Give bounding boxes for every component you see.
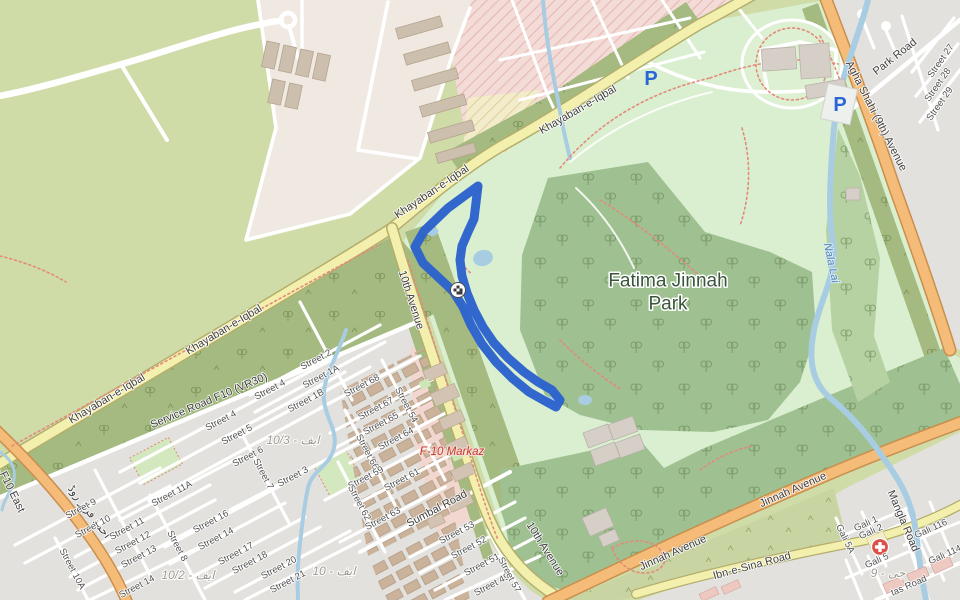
map-canvas[interactable]: PP Fatima JinnahPark Khayaban-e-IqbalKha…: [0, 0, 960, 600]
retail-label: F-10 Markaz: [420, 446, 485, 458]
area-label: 10 - ایف: [312, 564, 357, 578]
place-label: Park: [648, 294, 688, 315]
area-label: 10/3 - ایف: [266, 433, 321, 447]
map-viewport[interactable]: PP Fatima JinnahPark Khayaban-e-IqbalKha…: [0, 0, 960, 600]
parking-icon: P: [644, 68, 657, 90]
place-label: Fatima Jinnah: [608, 271, 727, 292]
route-marker-soccer-icon[interactable]: [451, 283, 466, 298]
retail-labels: F-10 Markaz: [420, 446, 485, 458]
area-label: جی - 9: [871, 566, 906, 580]
parking-icon: P: [833, 94, 846, 116]
cul-de-sac: [881, 21, 891, 31]
area-label: 10/2 - ایف: [161, 568, 216, 582]
